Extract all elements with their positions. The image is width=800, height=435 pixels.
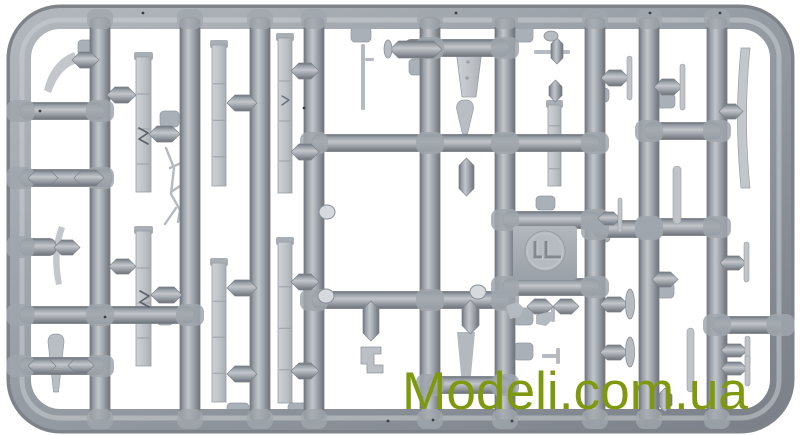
sprue-joint — [581, 276, 609, 298]
part-wing-strip — [278, 242, 292, 403]
part-propeller-blade — [618, 198, 622, 232]
sprue-joint — [7, 236, 35, 258]
part-disc — [384, 40, 392, 58]
sprue-joint — [416, 289, 444, 311]
sprue-runner — [250, 18, 270, 420]
sprue-joint — [7, 304, 35, 326]
sprue-joint — [87, 409, 113, 429]
sprue-joint — [636, 9, 662, 29]
part-wing-strip — [278, 38, 292, 193]
pin-mark — [719, 12, 722, 15]
sprue-joint — [7, 100, 35, 122]
sprue-joint — [635, 120, 663, 142]
part-bracket — [361, 347, 383, 373]
watermark-text: Modeli.com.ua — [402, 362, 749, 421]
sprue-gate-capsule — [549, 80, 562, 102]
sprue-joint — [176, 304, 204, 326]
sprue-joint — [704, 9, 730, 29]
part-blade — [738, 48, 751, 188]
part-disc — [626, 289, 635, 319]
sprue-joint — [635, 216, 663, 238]
pin-mark — [387, 420, 390, 423]
part-propeller-blade — [680, 64, 685, 110]
part-propeller-blade — [744, 242, 749, 282]
sprue-joint — [703, 314, 731, 336]
part-wing-strip — [212, 45, 226, 186]
pin-mark — [104, 316, 107, 319]
sprue-joint — [177, 409, 203, 429]
sprue-runner — [420, 18, 440, 420]
sprue-gate-capsule — [107, 87, 136, 103]
pin-mark — [649, 12, 652, 15]
sprue-gate-capsule — [149, 126, 180, 142]
pin-mark — [142, 12, 145, 15]
part-stub — [365, 58, 374, 61]
sprue-joint — [87, 9, 113, 29]
part-wing-strip — [212, 263, 226, 402]
sprue-gate-capsule — [363, 301, 379, 341]
sprue-joint — [417, 9, 443, 29]
ejector-pad — [351, 27, 371, 42]
sprue-joint — [247, 9, 273, 29]
sprue-gate-capsule — [553, 299, 579, 314]
sprue-joint — [491, 132, 519, 154]
sprue-joint — [301, 409, 327, 429]
sprue-runner — [180, 18, 200, 420]
part-disc — [544, 31, 558, 41]
sprue-joint — [703, 120, 731, 142]
sprue-crossbar — [312, 135, 599, 152]
sprue-gate-capsule — [459, 158, 474, 196]
sprue-joint — [492, 9, 518, 29]
part-wing-strip — [136, 231, 151, 366]
ejector-pad — [536, 196, 555, 210]
sprue-joint — [491, 37, 519, 59]
sprue-joint — [86, 100, 114, 122]
ejector-pad — [514, 343, 533, 360]
sprue-joint — [86, 304, 114, 326]
ejector-pad — [160, 111, 179, 127]
sprue-gate-capsule — [151, 287, 182, 303]
sprue-joint — [582, 9, 608, 29]
sprue-joint — [703, 216, 731, 238]
photo-canvas: Modeli.com.ua — [0, 0, 800, 435]
sprue-joint — [247, 409, 273, 429]
sprue-gate-capsule — [551, 38, 563, 64]
part-stub — [542, 354, 558, 358]
part-prop-blade-curved — [44, 52, 78, 93]
sprue-joint — [301, 9, 327, 29]
part-spinner — [457, 100, 474, 134]
pin-mark — [39, 110, 42, 113]
sprue-gate-capsule — [109, 259, 136, 274]
sprue-gate-capsule — [390, 41, 442, 58]
part-strut-rod — [361, 44, 365, 110]
part-blade-curved — [53, 226, 65, 285]
part-propeller-blade — [627, 56, 632, 100]
gate-nub — [470, 285, 486, 299]
gate-nub — [318, 289, 334, 303]
part-float-rivet — [465, 76, 468, 79]
pin-mark — [303, 107, 306, 110]
part-propeller-blade — [673, 166, 681, 224]
sprue-joint — [581, 132, 609, 154]
part-float-rivet — [466, 60, 469, 63]
gate-nub — [319, 205, 335, 219]
sprue-joint — [767, 314, 795, 336]
sprue-joint — [177, 9, 203, 29]
part-wing-strip — [136, 57, 151, 192]
sprue-photo: Modeli.com.ua — [0, 0, 800, 435]
sprue-joint — [416, 132, 444, 154]
pin-mark — [455, 12, 458, 15]
